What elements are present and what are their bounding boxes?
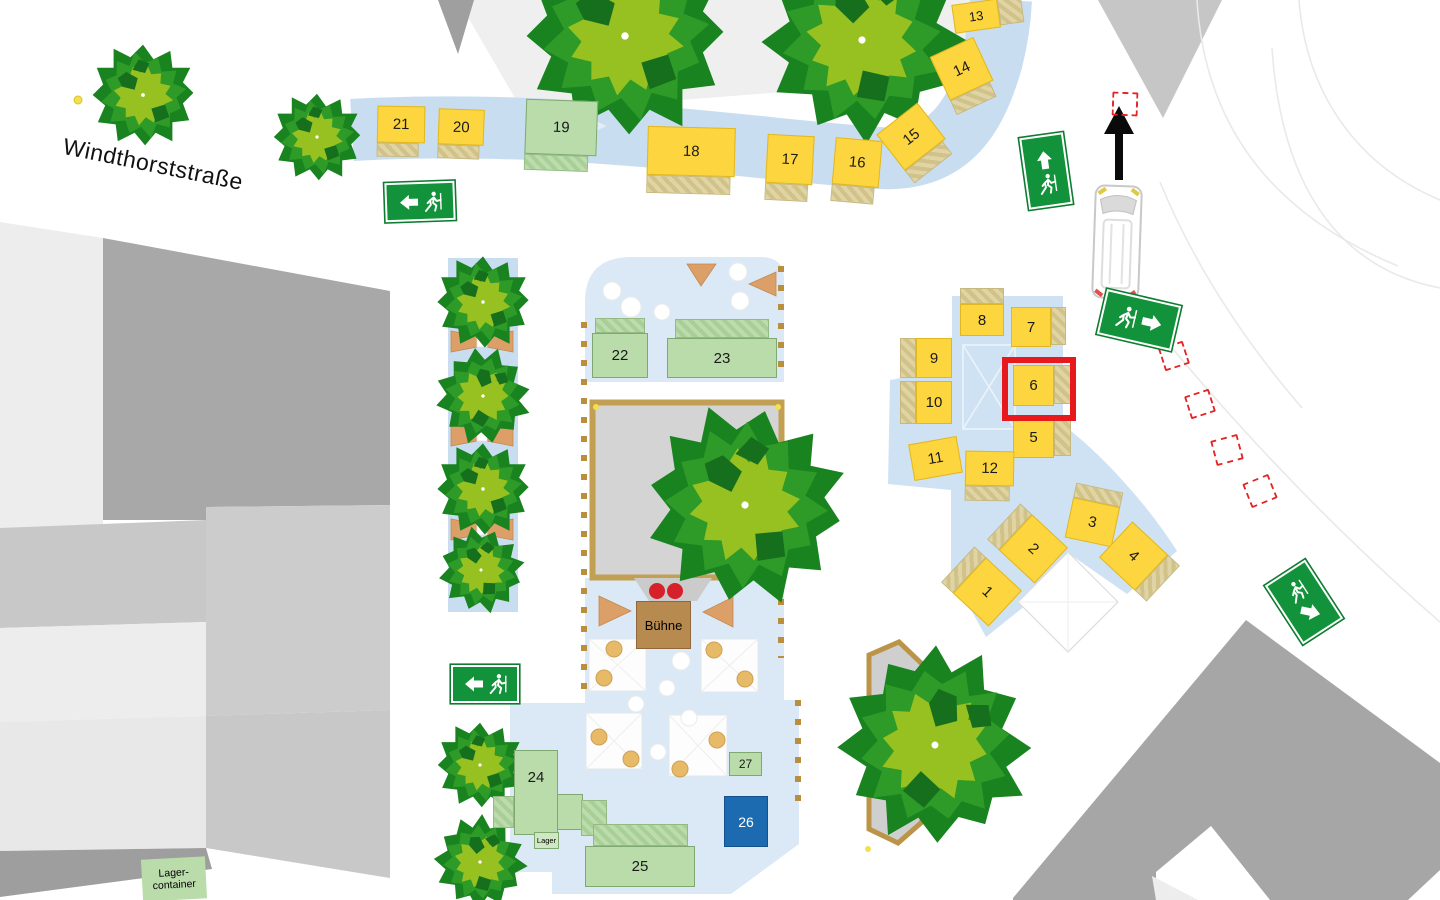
exit-arrow-right-icon — [1136, 307, 1167, 338]
stall-20[interactable]: 20 — [437, 108, 485, 160]
stall-number: 21 — [393, 116, 410, 133]
stall-24-annex — [557, 794, 583, 830]
stall-number: 3 — [1087, 513, 1099, 531]
stall-5[interactable]: 5 — [1013, 416, 1071, 458]
stall-7[interactable]: 7 — [1011, 307, 1066, 347]
stall-20-back — [437, 144, 479, 159]
running-man-icon — [1111, 303, 1140, 332]
stall-number: 20 — [453, 118, 470, 136]
storage-container: Lager- container — [141, 856, 207, 900]
exit-arrow-down-right-icon — [1295, 596, 1326, 627]
stall-12-back — [965, 486, 1010, 502]
building-bottom-right — [1013, 620, 1440, 900]
stall-9-back — [900, 338, 916, 378]
stall-number: 12 — [981, 460, 998, 477]
stall-number: 19 — [553, 119, 570, 137]
stall-number: 16 — [848, 153, 866, 171]
stall-22[interactable]: 22 — [592, 318, 648, 378]
stall-16[interactable]: 16 — [830, 137, 882, 205]
stall-18[interactable]: 18 — [646, 126, 736, 195]
stall-number: 26 — [738, 814, 754, 830]
stall-9[interactable]: 9 — [900, 338, 952, 378]
stall-23-back — [675, 319, 769, 338]
storage-container-label-2: container — [152, 878, 196, 892]
stall-number: 25 — [632, 858, 649, 875]
stall-10[interactable]: 10 — [900, 381, 952, 424]
stall-27[interactable]: 27 — [729, 752, 762, 776]
stall-24[interactable]: 24 — [514, 750, 558, 835]
stall-number: 15 — [899, 125, 923, 149]
building-wedge-top — [438, 0, 474, 54]
route-arrow-up-icon — [1104, 106, 1134, 180]
stall-16-back — [830, 184, 874, 205]
stall-number: 22 — [612, 347, 629, 364]
stall-21[interactable]: 21 — [377, 106, 426, 158]
selected-stall-highlight — [1002, 357, 1076, 421]
emergency-exit-sign-left-2 — [451, 665, 519, 703]
stall-number: 24 — [528, 769, 545, 786]
stall-number: 27 — [739, 757, 752, 771]
building-cluster-left — [0, 222, 390, 897]
stall-8[interactable]: 8 — [960, 288, 1004, 336]
stage-label: Bühne — [645, 618, 683, 633]
stall-number: 23 — [714, 350, 731, 367]
storage-label: Lager — [537, 836, 556, 845]
stall-number: 8 — [978, 312, 986, 329]
stall-number: 7 — [1027, 319, 1035, 336]
stall-number: 4 — [1125, 547, 1143, 565]
stage: Bühne — [636, 601, 691, 649]
stall-25[interactable]: 25 — [585, 824, 695, 887]
stall-number: 13 — [968, 8, 984, 25]
stall-number: 18 — [683, 143, 700, 160]
running-man-icon — [487, 673, 509, 695]
stall-18-back — [646, 175, 730, 195]
stall-5-back — [1054, 416, 1071, 456]
stall-25-back — [593, 824, 688, 846]
bus-top-view-icon — [1092, 185, 1142, 299]
stall-number: 1 — [979, 583, 997, 601]
exit-arrow-left-icon — [396, 189, 421, 214]
stall-number: 10 — [926, 394, 943, 411]
emergency-exit-sign-left-1 — [384, 181, 455, 222]
stall-26[interactable]: 26 — [724, 796, 768, 847]
stall-10-back — [900, 381, 916, 424]
stall-number: 5 — [1029, 429, 1037, 446]
stall-24-side-left — [493, 796, 514, 828]
stall-17-back — [764, 183, 808, 202]
stall-13-back — [997, 0, 1025, 25]
stall-17[interactable]: 17 — [764, 134, 814, 202]
stall-22-back — [595, 318, 645, 333]
storage-box: Lager — [534, 832, 559, 849]
stall-8-back — [960, 288, 1004, 304]
yellow-marker — [74, 96, 82, 104]
running-man-icon — [421, 190, 444, 213]
stall-19-back — [524, 154, 589, 172]
stall-number: 2 — [1025, 540, 1043, 558]
stall-number: 17 — [781, 151, 799, 169]
stall-number: 9 — [930, 350, 938, 367]
stall-21-back — [377, 143, 419, 158]
exit-arrow-up-icon — [1031, 146, 1058, 173]
stall-23[interactable]: 23 — [667, 319, 777, 378]
site-plan-map: Windthorststraße 21 20 19 18 17 16 15 14… — [0, 0, 1440, 900]
fire-access-marker — [1112, 92, 1139, 117]
stall-7-back — [1051, 307, 1066, 345]
running-man-icon — [1035, 171, 1060, 196]
stall-19[interactable]: 19 — [524, 99, 598, 172]
stall-number: 11 — [926, 449, 944, 468]
stall-12[interactable]: 12 — [965, 451, 1015, 502]
exit-arrow-left-icon — [462, 672, 486, 696]
stall-number: 14 — [950, 58, 972, 80]
